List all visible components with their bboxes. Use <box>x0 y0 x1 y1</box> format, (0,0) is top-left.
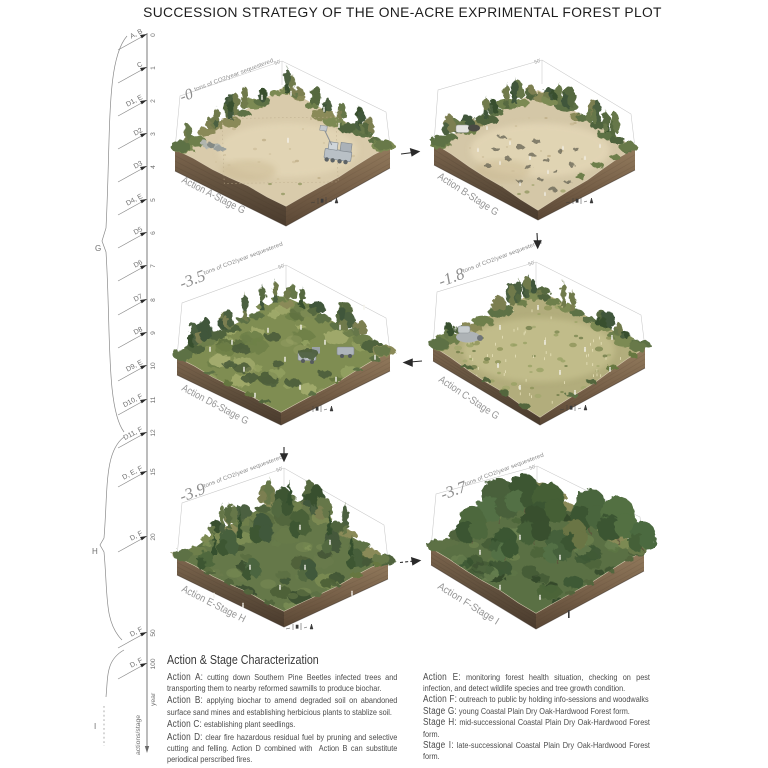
svg-text:20: 20 <box>150 533 157 541</box>
svg-text:6: 6 <box>150 231 157 235</box>
svg-text:D, F: D, F <box>129 626 144 638</box>
svg-text:D1, E: D1, E <box>125 94 144 109</box>
svg-text:50': 50' <box>529 464 537 472</box>
svg-text:0: 0 <box>150 33 157 37</box>
svg-text:G: G <box>95 244 101 253</box>
svg-text:-3.7: -3.7 <box>438 477 470 504</box>
svg-text:I: I <box>94 722 96 731</box>
svg-text:50': 50' <box>534 58 542 66</box>
svg-text:D, F: D, F <box>129 530 144 542</box>
svg-text:3: 3 <box>150 132 157 136</box>
svg-text:tons of CO2/year sequestered: tons of CO2/year sequestered <box>462 240 543 275</box>
svg-text:11: 11 <box>150 396 157 403</box>
svg-text:50': 50' <box>278 263 286 271</box>
svg-text:12: 12 <box>150 429 157 437</box>
svg-text:50': 50' <box>274 59 282 67</box>
svg-text:7: 7 <box>150 264 157 268</box>
svg-text:A, B: A, B <box>129 28 144 41</box>
svg-text:50': 50' <box>528 260 536 268</box>
svg-text:D, F: D, F <box>129 657 144 669</box>
svg-text:-3.9: -3.9 <box>177 479 208 506</box>
svg-text:50': 50' <box>276 466 284 474</box>
svg-text:tons of CO2/year sequestered: tons of CO2/year sequestered <box>203 242 284 277</box>
svg-text:H: H <box>92 547 98 556</box>
svg-text:4: 4 <box>150 165 157 169</box>
svg-text:5: 5 <box>150 198 157 202</box>
svg-text:tons of CO2/year sequestered: tons of CO2/year sequestered <box>194 58 275 93</box>
svg-text:8: 8 <box>150 298 157 302</box>
svg-text:50: 50 <box>150 629 157 637</box>
svg-text:-3.5: -3.5 <box>177 266 208 293</box>
svg-text:2: 2 <box>150 99 157 103</box>
svg-text:15: 15 <box>150 468 157 476</box>
svg-text:100: 100 <box>150 658 157 669</box>
svg-text:9: 9 <box>150 331 157 335</box>
svg-text:actions/stage: actions/stage <box>135 715 142 755</box>
svg-text:10: 10 <box>150 362 157 370</box>
svg-text:D4, E: D4, E <box>125 193 144 208</box>
svg-text:1: 1 <box>150 66 157 70</box>
svg-text:D9, E: D9, E <box>125 359 144 374</box>
svg-text:year: year <box>150 692 157 706</box>
svg-text:-1.8: -1.8 <box>436 264 468 291</box>
